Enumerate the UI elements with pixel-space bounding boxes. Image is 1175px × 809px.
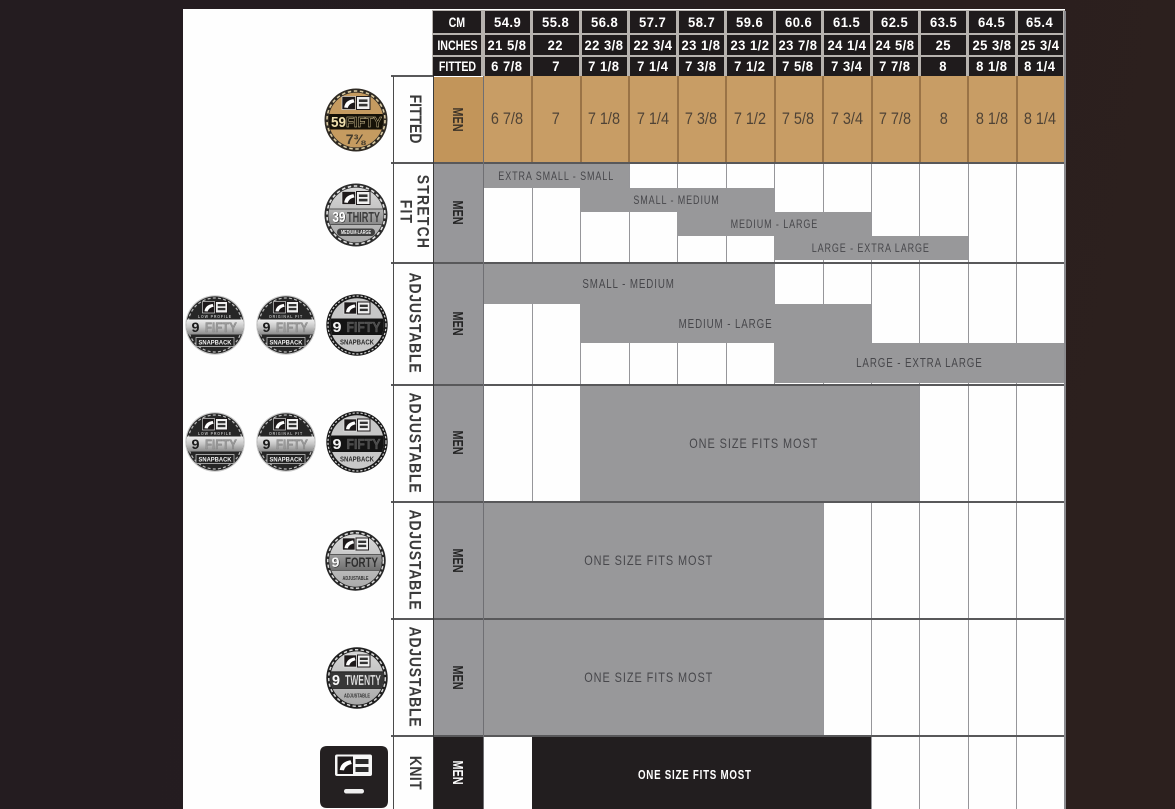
svg-text:39: 39: [333, 210, 346, 226]
svg-text:ADJUSTABLE: ADJUSTABLE: [343, 576, 370, 582]
svg-text:ADJUSTABLE: ADJUSTABLE: [344, 694, 371, 700]
svg-text:SNAPBACK: SNAPBACK: [270, 457, 303, 464]
svg-text:9: 9: [332, 554, 340, 570]
svg-text:9: 9: [332, 319, 341, 336]
svg-text:9: 9: [191, 319, 199, 335]
svg-text:THIRTY: THIRTY: [347, 210, 380, 226]
svg-text:SNAPBACK: SNAPBACK: [340, 457, 374, 464]
svg-text:SNAPBACK: SNAPBACK: [198, 340, 231, 347]
svg-text:59: 59: [331, 114, 346, 131]
svg-text:FIFTY: FIFTY: [346, 114, 382, 131]
svg-text:FIFTY: FIFTY: [205, 319, 238, 335]
svg-text:9: 9: [262, 319, 270, 335]
svg-text:FIFTY: FIFTY: [276, 436, 309, 452]
svg-text:MEDIUM-LARGE: MEDIUM-LARGE: [341, 230, 371, 236]
svg-text:SNAPBACK: SNAPBACK: [269, 340, 302, 347]
svg-text:9: 9: [332, 673, 340, 689]
svg-text:TWENTY: TWENTY: [345, 673, 381, 689]
svg-text:9: 9: [333, 436, 342, 453]
svg-text:SNAPBACK: SNAPBACK: [340, 340, 374, 347]
svg-text:7⅜: 7⅜: [346, 131, 367, 147]
svg-text:9: 9: [263, 436, 271, 452]
svg-text:SNAPBACK: SNAPBACK: [199, 457, 232, 464]
svg-text:FORTY: FORTY: [345, 554, 378, 570]
svg-text:9: 9: [192, 436, 200, 452]
svg-text:FIFTY: FIFTY: [346, 319, 380, 336]
svg-text:FIFTY: FIFTY: [205, 436, 238, 452]
svg-text:FIFTY: FIFTY: [347, 436, 381, 453]
svg-text:FIFTY: FIFTY: [276, 319, 309, 335]
